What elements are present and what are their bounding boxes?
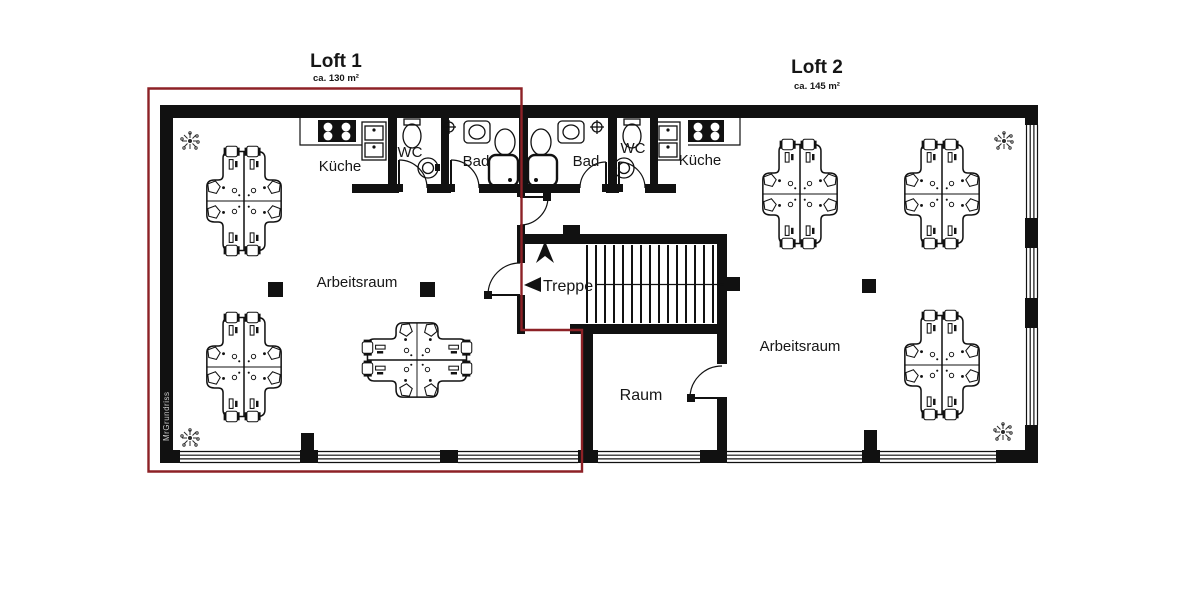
window [180, 452, 300, 463]
window [1027, 248, 1038, 298]
window [318, 452, 440, 463]
plant-icon [181, 429, 199, 446]
watermark: MrGrundriss [162, 391, 171, 441]
direction-arrow-icon [524, 277, 541, 292]
plant-icon [181, 132, 199, 149]
desk-cluster [905, 139, 979, 249]
room-label-kueche-right: Küche [679, 152, 722, 169]
floor-plan-page: Treppe [0, 0, 1200, 600]
stairs: Treppe [524, 241, 740, 323]
loft1-area: ca. 130 m² [313, 73, 359, 84]
desk-cluster [905, 310, 979, 420]
room-label-arbeitsraum-right: Arbeitsraum [760, 338, 841, 355]
loft1-title: Loft 1 [310, 51, 362, 72]
shower-icon [590, 120, 604, 134]
kitchen-unit-icon [362, 122, 386, 160]
loft2-area: ca. 145 m² [794, 81, 840, 92]
floor-plan-svg: Treppe [0, 0, 1200, 600]
sink-icon [558, 121, 584, 143]
window [1027, 125, 1038, 218]
door-arc [520, 193, 551, 225]
room-label-wc-right: WC [621, 140, 646, 157]
room-label-kueche-left: Küche [319, 158, 362, 175]
kitchen-left [300, 118, 386, 160]
room-label-raum: Raum [620, 387, 663, 404]
window [598, 452, 700, 463]
door-arc [687, 366, 727, 402]
desk-cluster [362, 323, 472, 397]
bathtub-icon [528, 155, 557, 186]
basin-icon [531, 129, 551, 155]
kitchen-unit-icon [656, 122, 680, 160]
basin-icon [495, 129, 515, 155]
window [727, 452, 862, 463]
door-arc [484, 263, 520, 299]
pillar [563, 225, 580, 242]
bathtub-icon [489, 155, 518, 186]
window [458, 452, 578, 463]
right-windows [1027, 125, 1038, 425]
stove-icon [318, 120, 356, 142]
plant-icon [994, 423, 1012, 440]
pillar [420, 282, 435, 297]
stove-icon [688, 120, 724, 142]
sink-icon [464, 121, 490, 143]
room-label-wc-left: WC [398, 144, 423, 161]
desk-cluster [207, 312, 281, 422]
loft2-title: Loft 2 [791, 57, 843, 78]
window [880, 452, 996, 463]
room-label-bad-left: Bad [463, 153, 490, 170]
room-label-arbeitsraum-left: Arbeitsraum [317, 274, 398, 291]
room-label-treppe: Treppe [543, 278, 593, 295]
north-arrow-icon [536, 241, 554, 263]
sink-icon [418, 158, 440, 178]
desk-cluster [763, 139, 837, 249]
pillar [862, 279, 876, 293]
window [1027, 328, 1038, 425]
room-label-bad-right: Bad [573, 153, 600, 170]
pillar [268, 282, 283, 297]
desk-cluster [207, 146, 281, 256]
plant-icon [995, 132, 1013, 149]
